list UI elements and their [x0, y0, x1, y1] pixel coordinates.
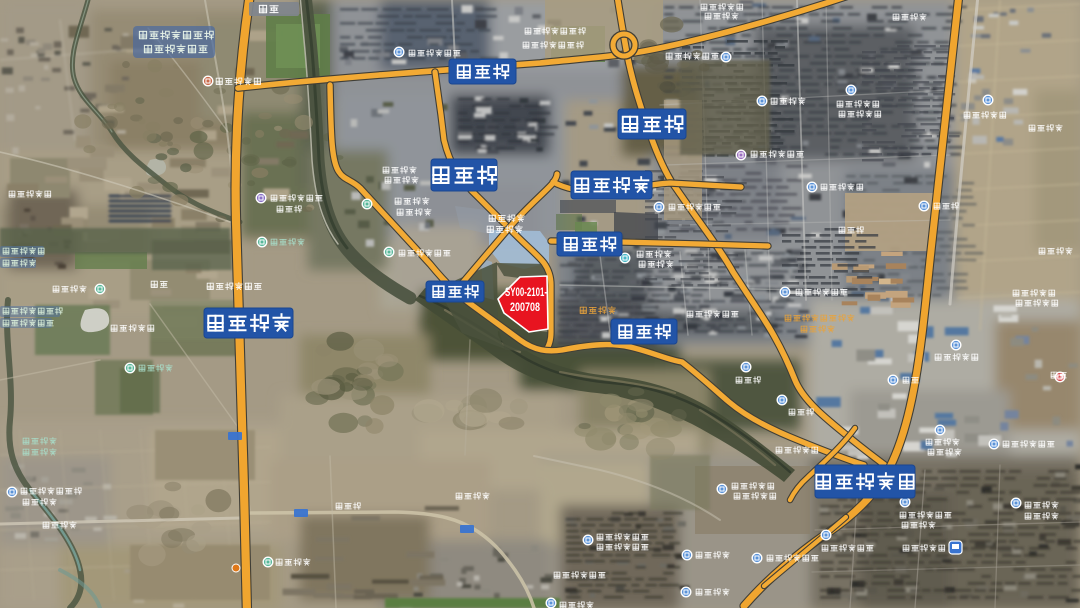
- svg-text:SY00-2101-: SY00-2101-: [505, 287, 547, 299]
- svg-text:200708: 200708: [510, 302, 540, 314]
